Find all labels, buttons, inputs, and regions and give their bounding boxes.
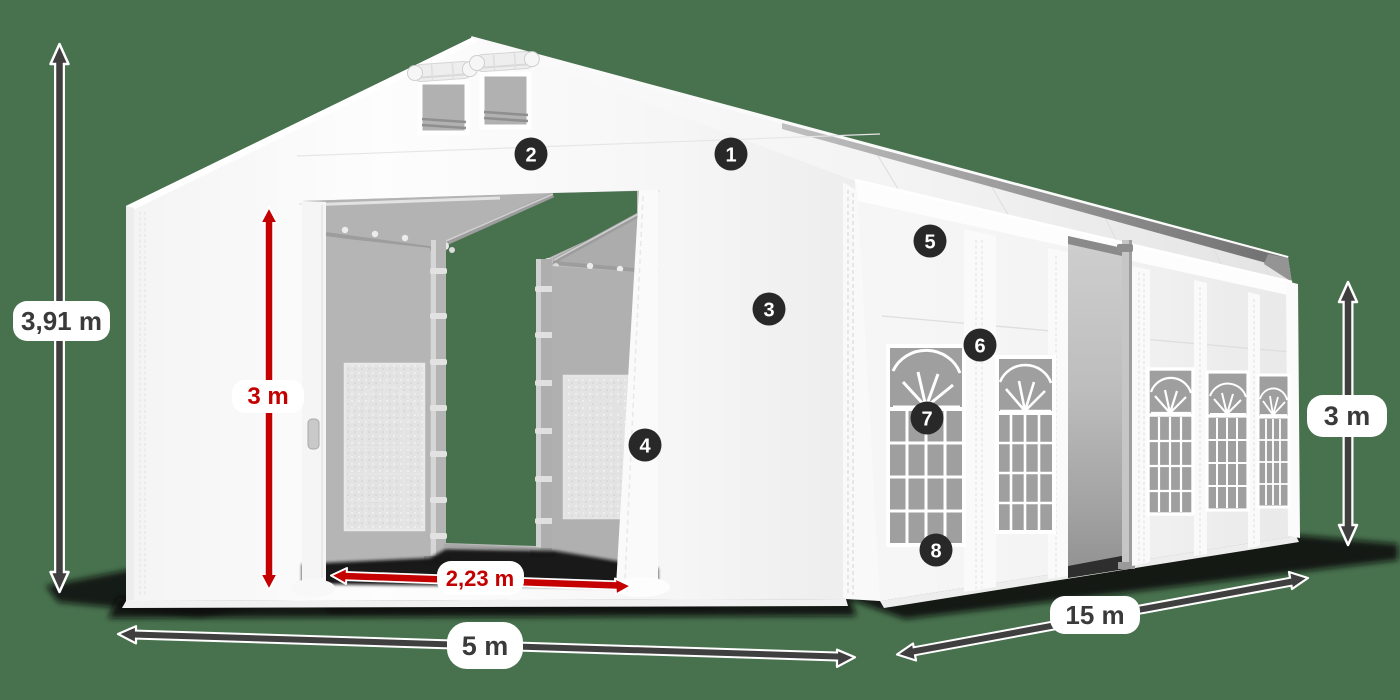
svg-text:8: 8 xyxy=(930,541,941,563)
svg-text:7: 7 xyxy=(921,409,932,431)
svg-text:2: 2 xyxy=(525,145,536,167)
svg-text:4: 4 xyxy=(639,436,651,458)
svg-text:5: 5 xyxy=(924,232,935,254)
svg-text:3,91 m: 3,91 m xyxy=(21,306,102,336)
svg-text:6: 6 xyxy=(974,336,985,358)
svg-text:3: 3 xyxy=(763,300,774,322)
svg-text:1: 1 xyxy=(725,145,736,167)
svg-text:15 m: 15 m xyxy=(1065,600,1124,630)
svg-text:3 m: 3 m xyxy=(1324,401,1371,431)
svg-text:5 m: 5 m xyxy=(462,631,509,661)
svg-text:2,23 m: 2,23 m xyxy=(446,566,515,591)
svg-text:3 m: 3 m xyxy=(247,383,288,410)
